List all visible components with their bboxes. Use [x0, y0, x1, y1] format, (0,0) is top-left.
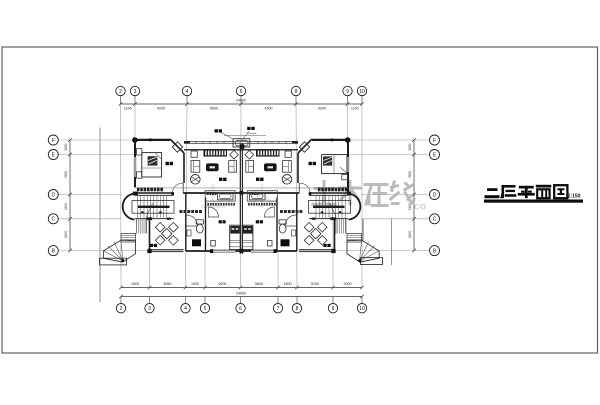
svg-text:F: F: [52, 138, 55, 144]
svg-text:10: 10: [359, 89, 365, 95]
svg-text:2: 2: [119, 89, 122, 95]
svg-text:3150: 3150: [408, 231, 412, 238]
svg-text:5600: 5600: [255, 282, 263, 286]
svg-text:8: 8: [295, 89, 298, 95]
svg-text:10: 10: [359, 306, 365, 312]
svg-text:1:150: 1:150: [568, 194, 581, 200]
svg-text:24000: 24000: [236, 291, 246, 295]
svg-text:D: D: [51, 192, 55, 198]
svg-text:9: 9: [346, 89, 349, 95]
svg-text:3150: 3150: [64, 231, 68, 238]
svg-text:D: D: [433, 192, 437, 198]
svg-text:4200: 4200: [318, 106, 326, 110]
svg-text:2: 2: [120, 306, 123, 312]
svg-text:2400: 2400: [64, 203, 68, 210]
svg-text:5000: 5000: [219, 282, 227, 286]
svg-text:4200: 4200: [157, 106, 165, 110]
svg-text:8: 8: [296, 306, 299, 312]
svg-text:6: 6: [240, 89, 243, 95]
svg-text:1520: 1520: [191, 282, 199, 286]
svg-text:1600: 1600: [284, 282, 292, 286]
svg-text:4: 4: [184, 306, 187, 312]
svg-text:1500: 1500: [64, 143, 68, 150]
svg-text:co: co: [414, 201, 426, 213]
svg-text:5100: 5100: [311, 282, 319, 286]
svg-text:C: C: [51, 217, 55, 223]
svg-text:3900: 3900: [408, 171, 412, 178]
svg-text:6500: 6500: [210, 106, 218, 110]
svg-text:F: F: [433, 138, 436, 144]
svg-text:4: 4: [186, 89, 189, 95]
svg-text:1500: 1500: [408, 143, 412, 150]
svg-text:6: 6: [239, 306, 242, 312]
svg-text:3: 3: [134, 89, 137, 95]
svg-text:3900: 3900: [64, 171, 68, 178]
svg-text:4300: 4300: [265, 106, 273, 110]
svg-text:9: 9: [332, 306, 335, 312]
svg-text:2500: 2500: [344, 282, 352, 286]
svg-text:1100: 1100: [124, 106, 132, 110]
svg-text:1100: 1100: [351, 106, 359, 110]
svg-text:5050: 5050: [164, 282, 172, 286]
svg-text:7: 7: [277, 306, 280, 312]
svg-text:1500: 1500: [131, 282, 139, 286]
svg-text:5: 5: [204, 306, 207, 312]
svg-text:C: C: [433, 217, 437, 223]
svg-text:3: 3: [148, 306, 151, 312]
